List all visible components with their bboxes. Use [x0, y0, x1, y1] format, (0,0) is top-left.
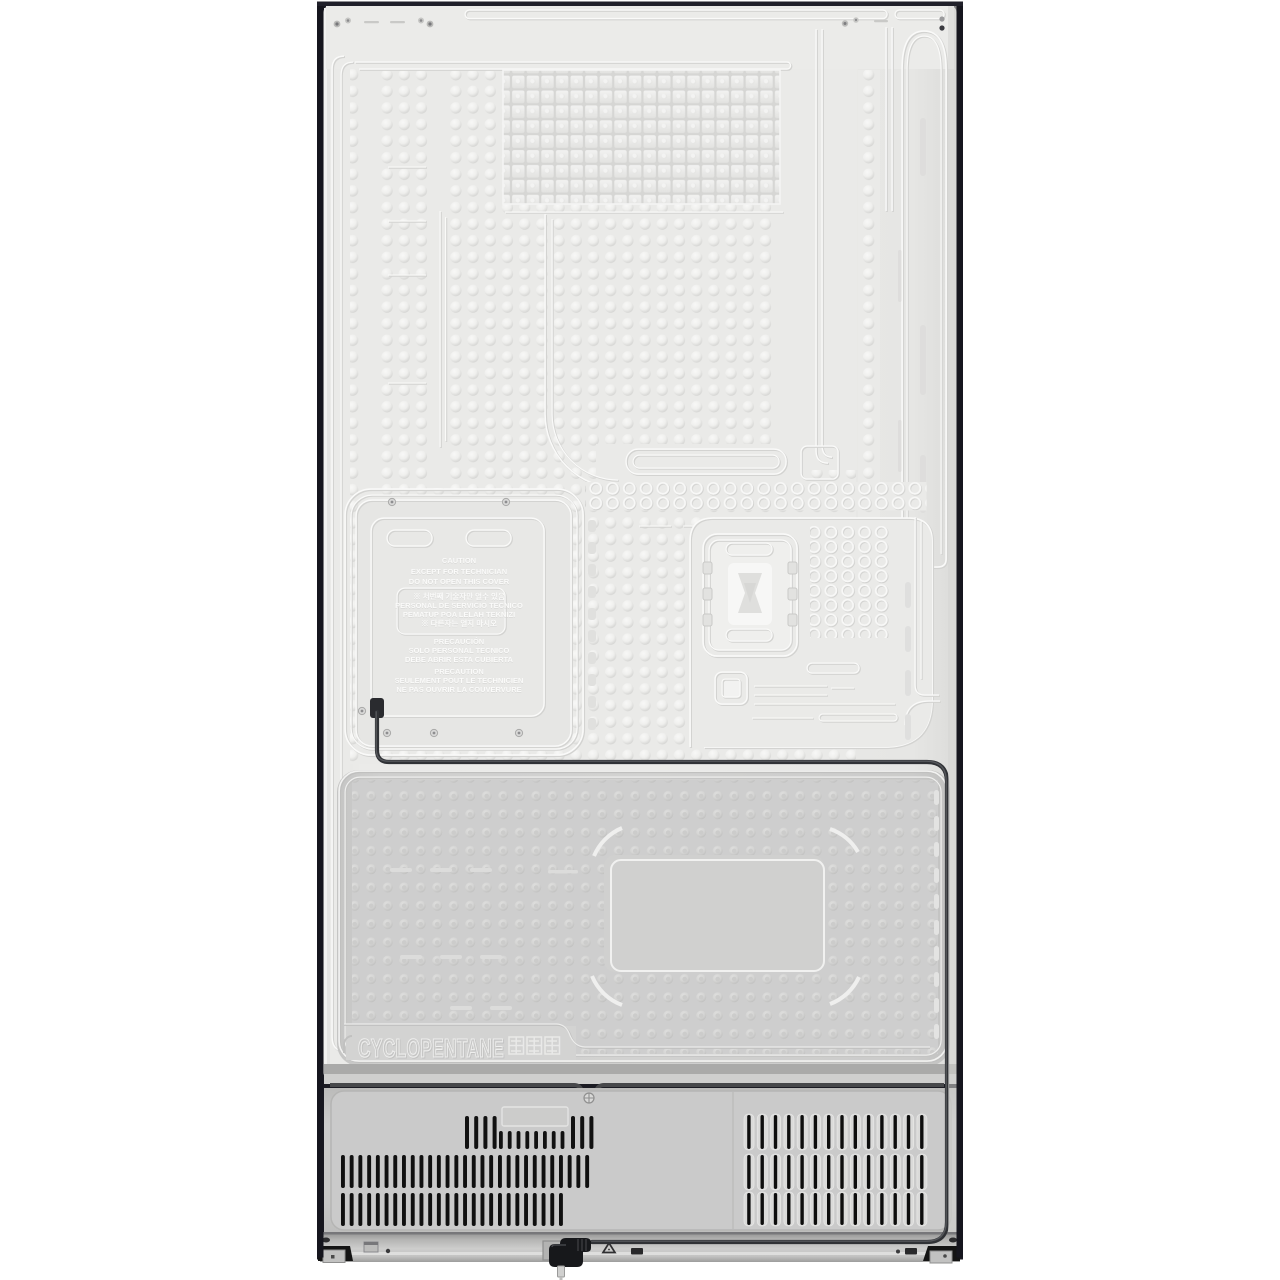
svg-text:DO NOT OPEN THIS COVER: DO NOT OPEN THIS COVER: [409, 577, 510, 586]
svg-text:PEMATUP POA LELAH TEKNIZI: PEMATUP POA LELAH TEKNIZI: [403, 610, 515, 619]
svg-text:CAUTION: CAUTION: [442, 556, 476, 565]
svg-text:NE PAS OUVRIR LA COUVERVURE: NE PAS OUVRIR LA COUVERVURE: [396, 685, 521, 694]
svg-text:※ 다른자는 열지 마시오: ※ 다른자는 열지 마시오: [421, 618, 497, 628]
svg-text:PERSONAL DE SERVICIO TECNICO: PERSONAL DE SERVICIO TECNICO: [395, 601, 523, 610]
svg-text:SOLO PERSONAL TECNICO: SOLO PERSONAL TECNICO: [409, 646, 510, 655]
svg-text:CYCLOPENTANE: CYCLOPENTANE: [358, 1033, 504, 1063]
svg-text:PRECAUTION: PRECAUTION: [434, 667, 484, 676]
svg-text:PRECAUCIÓN: PRECAUCIÓN: [434, 637, 484, 646]
svg-text:※ 처번째 기술자만 열수 있음: ※ 처번째 기술자만 열수 있음: [413, 591, 505, 601]
svg-text:EXCEPT FOR TECHNICIAN: EXCEPT FOR TECHNICIAN: [411, 567, 507, 576]
svg-text:SEULEMENT POUT LE TECHNICIEN: SEULEMENT POUT LE TECHNICIEN: [395, 676, 524, 685]
svg-text:DEBE ABRIR ESTA CUBIERTA: DEBE ABRIR ESTA CUBIERTA: [405, 655, 514, 664]
